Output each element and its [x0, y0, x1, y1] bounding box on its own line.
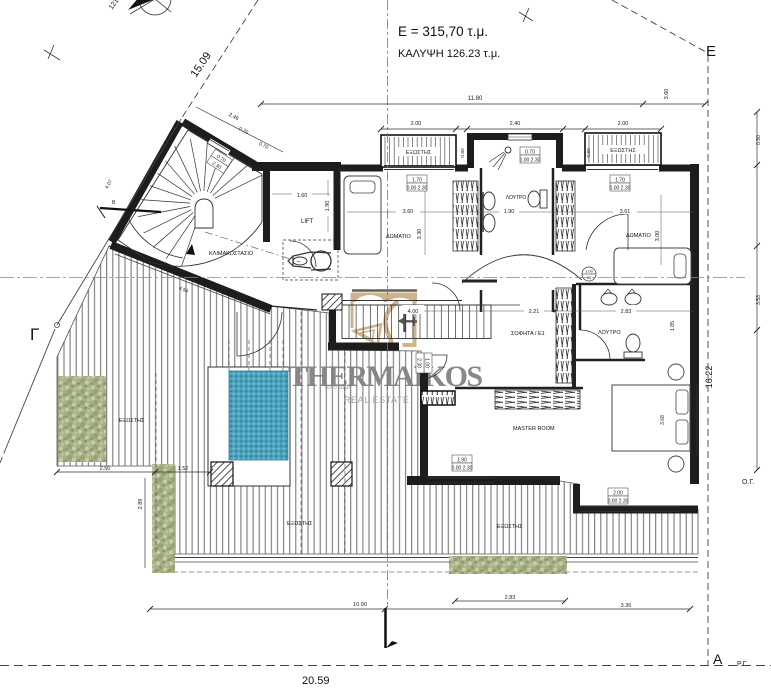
svg-text:10.90: 10.90 — [353, 602, 367, 608]
svg-text:ΕΞΩΣΤΗΣ: ΕΞΩΣΤΗΣ — [119, 418, 145, 424]
svg-text:3.60: 3.60 — [664, 89, 670, 100]
svg-text:2.89: 2.89 — [138, 499, 144, 510]
svg-text:MASTER ROOM: MASTER ROOM — [513, 426, 555, 432]
svg-text:LIFT: LIFT — [301, 219, 314, 225]
svg-text:4.00: 4.00 — [408, 309, 419, 315]
svg-text:3.61: 3.61 — [620, 209, 631, 215]
svg-text:REAL ESTATE: REAL ESTATE — [344, 395, 411, 405]
svg-text:3.68: 3.68 — [660, 415, 666, 425]
svg-text:2.00: 2.00 — [411, 121, 422, 127]
svg-text:1.00: 1.00 — [424, 358, 430, 368]
svg-text:1.90: 1.90 — [457, 458, 467, 464]
svg-text:0.80: 0.80 — [460, 148, 466, 158]
svg-text:A: A — [713, 651, 723, 667]
svg-text:ΕΞΩΣΤΗΣ: ΕΞΩΣΤΗΣ — [406, 150, 432, 156]
svg-text:ΕΞΩΣΤΗΣ: ΕΞΩΣΤΗΣ — [497, 524, 523, 530]
svg-text:ΣΟΦΗΤΑ / Ε1: ΣΟΦΗΤΑ / Ε1 — [511, 331, 545, 337]
svg-text:20.59: 20.59 — [302, 675, 330, 687]
svg-text:2.40: 2.40 — [510, 121, 521, 127]
svg-text:1.00: 1.00 — [585, 269, 594, 274]
svg-text:E = 315,70 τ.μ.: E = 315,70 τ.μ. — [398, 24, 488, 39]
svg-text:1.52: 1.52 — [178, 466, 189, 472]
svg-text:1.60: 1.60 — [297, 193, 308, 199]
svg-text:0.90: 0.90 — [756, 135, 762, 145]
svg-text:ΔΩΜΑΤΙΟ: ΔΩΜΑΤΙΟ — [626, 233, 652, 239]
svg-text:2.50: 2.50 — [100, 466, 111, 472]
svg-text:Ο.Γ.: Ο.Γ. — [742, 479, 754, 486]
svg-text:1.85: 1.85 — [670, 321, 676, 331]
svg-text:ΛΟΥΤΡΟ: ΛΟΥΤΡΟ — [506, 195, 527, 201]
svg-text:0.00 2.30: 0.00 2.30 — [610, 186, 631, 192]
svg-text:3.30: 3.30 — [417, 229, 423, 240]
svg-text:3.60: 3.60 — [403, 209, 414, 215]
svg-text:1.90: 1.90 — [504, 209, 515, 215]
svg-text:1.90: 1.90 — [325, 201, 331, 212]
svg-text:0.00 2.30: 0.00 2.30 — [407, 186, 428, 192]
svg-text:E: E — [706, 43, 716, 60]
svg-text:1.70: 1.70 — [412, 178, 422, 184]
svg-text:3.00: 3.00 — [655, 231, 661, 242]
svg-text:16.22: 16.22 — [704, 366, 714, 389]
svg-text:ΚΑΛΥΨΗ 126.23 τ.μ.: ΚΑΛΥΨΗ 126.23 τ.μ. — [398, 48, 500, 60]
svg-text:2.00: 2.00 — [613, 491, 623, 497]
svg-text:ΕΞΩΣΤΗΣ: ΕΞΩΣΤΗΣ — [287, 521, 313, 527]
svg-text:2.83: 2.83 — [505, 595, 516, 601]
svg-text:1.00 2.30: 1.00 2.30 — [520, 158, 541, 164]
svg-text:1.70: 1.70 — [615, 178, 625, 184]
svg-text:0.70: 0.70 — [525, 150, 535, 156]
svg-text:2.21: 2.21 — [529, 309, 540, 315]
svg-text:11.80: 11.80 — [468, 96, 483, 102]
svg-text:0.00 2.30: 0.00 2.30 — [608, 499, 629, 505]
svg-text:ΔΩΜΑΤΙΟ: ΔΩΜΑΤΙΟ — [386, 234, 412, 240]
svg-text:2.00: 2.00 — [618, 121, 629, 127]
svg-text:2.30: 2.30 — [416, 358, 422, 368]
svg-text:0.80: 0.80 — [586, 148, 592, 158]
svg-text:2.83: 2.83 — [621, 309, 632, 315]
svg-text:ΛΟΥΤΡΟ: ΛΟΥΤΡΟ — [598, 330, 621, 336]
svg-text:ΒΑΤΟ ΔΩΜΑ: ΒΑΤΟ ΔΩΜΑ — [325, 385, 351, 390]
svg-text:0.00 2.30: 0.00 2.30 — [452, 466, 473, 472]
svg-text:3.53: 3.53 — [756, 295, 762, 305]
svg-text:Γ: Γ — [30, 325, 39, 344]
svg-text:ΕΞΩΣΤΗΣ: ΕΞΩΣΤΗΣ — [610, 148, 636, 154]
svg-text:THERMAIKOS: THERMAIKOS — [288, 360, 483, 393]
svg-text:Ρ.Γ.: Ρ.Γ. — [737, 661, 748, 668]
svg-text:ΚΛΙΜΑΚΟΣΤΑΣΙΟ: ΚΛΙΜΑΚΟΣΤΑΣΙΟ — [209, 251, 254, 257]
svg-text:3.36: 3.36 — [621, 603, 632, 609]
